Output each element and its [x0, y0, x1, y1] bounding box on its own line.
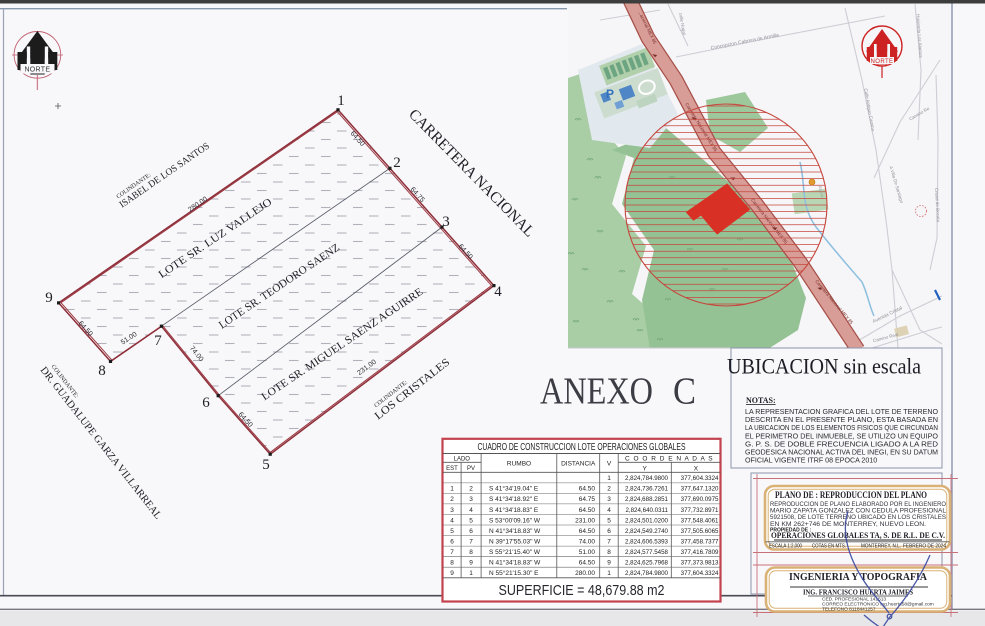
svg-text:4: 4: [607, 507, 611, 514]
svg-text:7: 7: [607, 538, 611, 545]
svg-text:6: 6: [202, 395, 210, 411]
svg-text:OFICIAL VIGENTE ITRF 08 EPOCA: OFICIAL VIGENTE ITRF 08 EPOCA 2010: [745, 457, 877, 465]
svg-text:2,824,784.9800: 2,824,784.9800: [625, 570, 669, 577]
svg-text:5: 5: [469, 517, 473, 524]
svg-text:SUPERFICIE = 48,679.88 m2: SUPERFICIE = 48,679.88 m2: [499, 583, 665, 599]
svg-text:2,824,625.7968: 2,824,625.7968: [625, 560, 669, 567]
svg-text:9: 9: [450, 570, 454, 577]
svg-text:C: C: [673, 371, 696, 413]
svg-text:1: 1: [607, 475, 611, 482]
svg-text:N 41°34'18.83" W: N 41°34'18.83" W: [489, 559, 541, 567]
svg-text:2,824,501.0200: 2,824,501.0200: [625, 517, 669, 524]
svg-text:377,505.6065: 377,505.6065: [681, 528, 719, 535]
svg-text:TELEFONO 8118441257: TELEFONO 8118441257: [822, 606, 876, 612]
svg-text:LADO: LADO: [454, 457, 471, 463]
svg-text:5: 5: [607, 517, 611, 524]
svg-text:COTAS EN MTS.: COTAS EN MTS.: [812, 544, 846, 550]
svg-text:2,824,736.7261: 2,824,736.7261: [625, 486, 669, 493]
svg-text:NOTAS:: NOTAS:: [746, 396, 776, 405]
svg-text:51.00: 51.00: [579, 549, 596, 556]
svg-text:S 41°34'18.92" E: S 41°34'18.92" E: [489, 495, 539, 503]
svg-text:377,373.9813: 377,373.9813: [681, 560, 719, 567]
svg-text:2,824,640.0311: 2,824,640.0311: [625, 507, 668, 514]
svg-text:V: V: [607, 461, 612, 468]
svg-text:280.00: 280.00: [575, 570, 595, 577]
svg-text:9: 9: [45, 290, 53, 306]
svg-text:S 55°21'15.40" W: S 55°21'15.40" W: [489, 548, 541, 556]
svg-text:GEODESICA NACIONAL ACTIVA DEL: GEODESICA NACIONAL ACTIVA DEL INEGI, EN …: [745, 449, 938, 457]
svg-text:S 41°34'18.83" E: S 41°34'18.83" E: [489, 506, 539, 514]
svg-text:2: 2: [607, 486, 611, 493]
svg-text:231.00: 231.00: [575, 517, 595, 524]
svg-text:C O O R D E N A D A S: C O O R D E N A D A S: [625, 456, 714, 463]
svg-text:ESCALA 1:2,000: ESCALA 1:2,000: [769, 544, 802, 550]
svg-text:INGENIERIA Y TOPOGRAFIA: INGENIERIA Y TOPOGRAFIA: [789, 572, 928, 583]
svg-text:2,824,606.5393: 2,824,606.5393: [625, 538, 669, 545]
svg-text:ANEXO: ANEXO: [540, 371, 653, 413]
svg-text:PLANO DE : REPRODUCCION DEL PL: PLANO DE : REPRODUCCION DEL PLANO: [775, 491, 927, 501]
svg-text:8: 8: [469, 549, 473, 556]
svg-text:CUADRO DE CONSTRUCCION LOTE OP: CUADRO DE CONSTRUCCION LOTE OPERACIONES …: [478, 442, 686, 453]
svg-text:2,824,688.2851: 2,824,688.2851: [625, 496, 669, 503]
svg-text:3: 3: [450, 507, 454, 514]
svg-text:UBICACION sin escala: UBICACION sin escala: [727, 354, 921, 379]
svg-text:8: 8: [98, 363, 106, 379]
svg-text:1: 1: [337, 93, 345, 109]
svg-text:64.75: 64.75: [579, 496, 596, 503]
svg-text:RUMBO: RUMBO: [507, 461, 531, 468]
svg-text:2,824,784.9800: 2,824,784.9800: [625, 475, 669, 482]
svg-text:64.50: 64.50: [579, 486, 596, 493]
svg-text:7: 7: [154, 333, 162, 349]
svg-text:9: 9: [607, 560, 611, 567]
svg-text:N 39°17'55.03" W: N 39°17'55.03" W: [489, 537, 541, 545]
svg-text:4: 4: [450, 517, 454, 524]
svg-text:377,604.3324: 377,604.3324: [681, 570, 719, 577]
svg-text:7: 7: [450, 549, 454, 556]
svg-text:X: X: [694, 466, 699, 473]
svg-text:P: P: [606, 87, 614, 101]
svg-text:ING. FRANCISCO HUERTA JAIMES: ING. FRANCISCO HUERTA JAIMES: [803, 588, 913, 597]
svg-text:6: 6: [450, 538, 454, 545]
svg-text:N 55°21'15.30" E: N 55°21'15.30" E: [489, 569, 539, 577]
svg-text:6: 6: [469, 528, 473, 535]
svg-text:FEBRERO DE 2024: FEBRERO DE 2024: [903, 544, 946, 550]
svg-text:G. P. S. DE DOBLE FRECUENCIA L: G. P. S. DE DOBLE FRECUENCIA LIGADO A LA…: [745, 440, 938, 448]
svg-text:1: 1: [607, 570, 611, 577]
svg-text:1: 1: [469, 570, 473, 577]
svg-text:377,732.8971: 377,732.8971: [681, 507, 719, 514]
svg-text:EST: EST: [446, 466, 458, 472]
svg-text:64.50: 64.50: [579, 528, 596, 535]
svg-text:NORTE: NORTE: [871, 59, 894, 65]
svg-text:5: 5: [450, 528, 454, 535]
svg-text:8: 8: [607, 549, 611, 556]
svg-text:1: 1: [450, 486, 454, 493]
svg-text:NORTE: NORTE: [24, 67, 50, 74]
svg-text:8: 8: [450, 560, 454, 567]
svg-text:4: 4: [494, 284, 502, 300]
svg-text:MONTERREY, N.L.: MONTERREY, N.L.: [861, 544, 901, 550]
svg-text:2,824,577.5458: 2,824,577.5458: [625, 549, 669, 556]
svg-text:Y: Y: [643, 466, 648, 473]
svg-text:2: 2: [469, 486, 473, 493]
svg-text:PV: PV: [467, 466, 475, 472]
svg-text:S 53°00'09.16" W: S 53°00'09.16" W: [489, 516, 541, 524]
svg-text:3: 3: [442, 214, 450, 230]
svg-text:LA REPRESENTACION GRAFICA DEL: LA REPRESENTACION GRAFICA DEL LOTE DE TE…: [745, 408, 938, 416]
svg-text:2: 2: [393, 155, 401, 171]
svg-text:N 41°34'18.83" W: N 41°34'18.83" W: [489, 527, 541, 535]
svg-text:9: 9: [469, 560, 473, 567]
svg-text:377,458.7377: 377,458.7377: [681, 538, 719, 545]
svg-text:LA UBICACION DE LOS ELEMENTOS: LA UBICACION DE LOS ELEMENTOS FISICOS QU…: [745, 424, 938, 432]
svg-text:7: 7: [469, 538, 473, 545]
svg-text:4: 4: [469, 507, 473, 514]
svg-text:64.50: 64.50: [579, 560, 596, 567]
svg-text:3: 3: [607, 496, 611, 503]
svg-text:377,604.3324: 377,604.3324: [681, 475, 719, 482]
svg-text:64.50: 64.50: [579, 507, 596, 514]
svg-text:OPERACIONES GLOBALES TA, S. DE: OPERACIONES GLOBALES TA, S. DE R.L. DE C…: [771, 531, 945, 540]
svg-text:EL PERIMETRO DEL INMUEBLE, SE: EL PERIMETRO DEL INMUEBLE, SE UTILIZO UN…: [745, 432, 938, 440]
svg-text:2: 2: [450, 496, 454, 503]
svg-text:377,416.7809: 377,416.7809: [681, 549, 719, 556]
svg-text:S 41°34'19.04" E: S 41°34'19.04" E: [489, 485, 539, 493]
svg-text:DISTANCIA: DISTANCIA: [561, 461, 596, 468]
svg-text:5: 5: [262, 457, 270, 473]
svg-text:6: 6: [607, 528, 611, 535]
svg-text:377,548.4061: 377,548.4061: [681, 517, 719, 524]
svg-text:2,824,549.2740: 2,824,549.2740: [625, 528, 669, 535]
svg-text:74.00: 74.00: [579, 538, 596, 545]
svg-text:3: 3: [469, 496, 473, 503]
svg-text:DESCRITA EN EL PRESENTE PLANO,: DESCRITA EN EL PRESENTE PLANO, ESTA BASA…: [745, 416, 938, 424]
svg-text:377,690.0975: 377,690.0975: [681, 496, 719, 503]
svg-text:377,647.1320: 377,647.1320: [681, 486, 719, 493]
